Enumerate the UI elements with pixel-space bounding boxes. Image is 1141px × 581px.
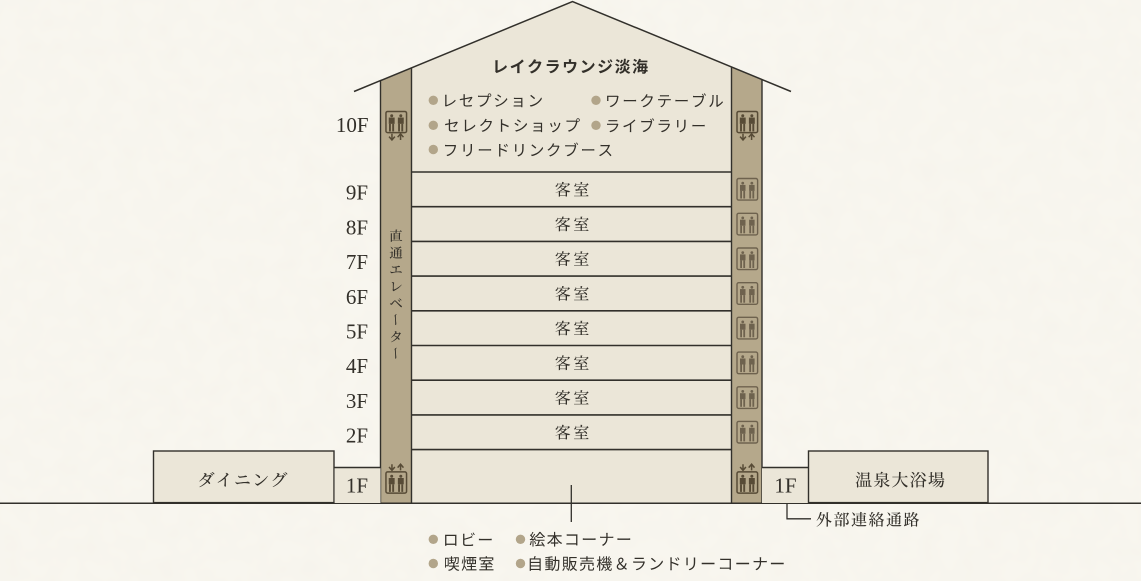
svg-text:3F: 3F bbox=[346, 389, 368, 413]
svg-text:9F: 9F bbox=[346, 181, 368, 205]
svg-text:1F: 1F bbox=[346, 474, 368, 498]
svg-text:6F: 6F bbox=[346, 285, 368, 309]
svg-text:1F: 1F bbox=[774, 474, 796, 498]
svg-text:7F: 7F bbox=[346, 250, 368, 274]
svg-text:5F: 5F bbox=[346, 319, 368, 343]
svg-text:2F: 2F bbox=[346, 424, 368, 448]
svg-text:8F: 8F bbox=[346, 215, 368, 239]
svg-text:4F: 4F bbox=[346, 354, 368, 378]
svg-text:10F: 10F bbox=[336, 113, 369, 137]
